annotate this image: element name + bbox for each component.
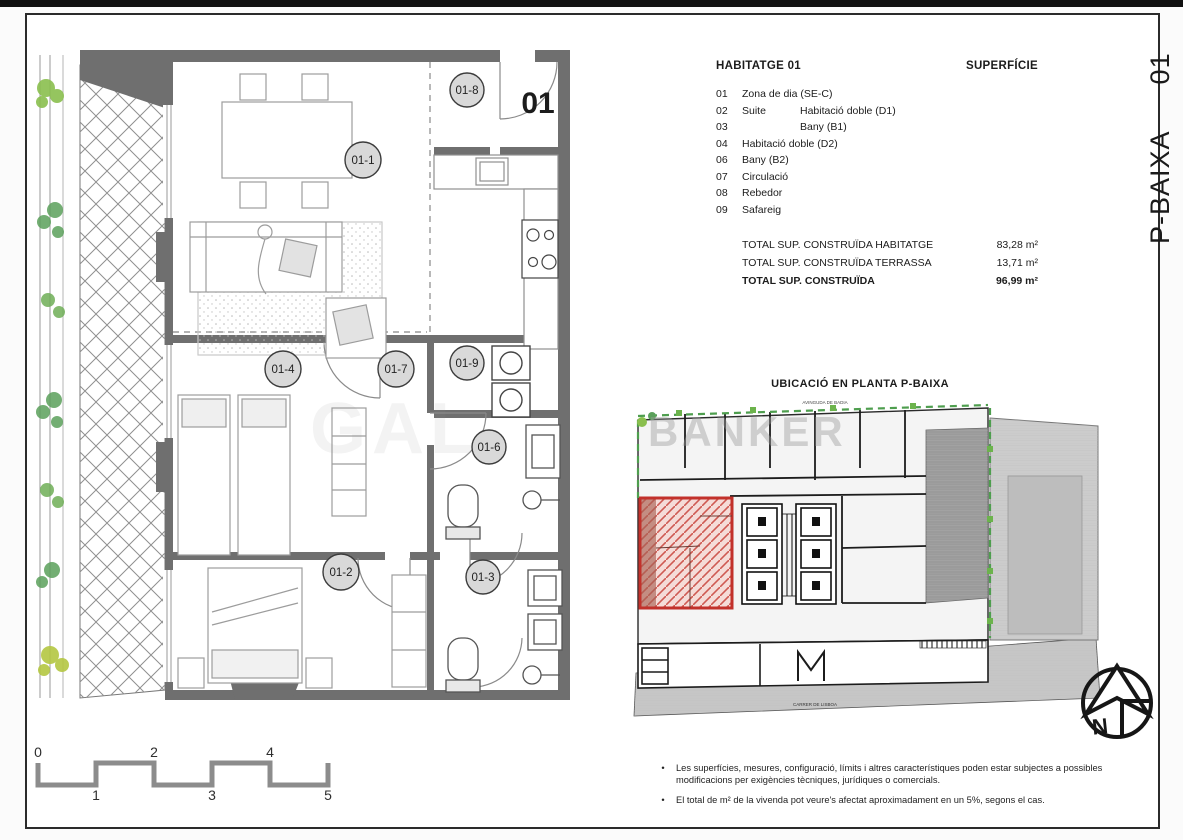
sheet-phase: P-BAIXA [1145, 130, 1175, 244]
site-plan: AVINGUDA DE BADIA CARRER DE LISBOA [630, 398, 1110, 743]
svg-text:01-1: 01-1 [351, 155, 374, 167]
room-tag-laundry: 01-9 [450, 346, 484, 380]
room-tag-bath-b1: 01-3 [466, 560, 500, 594]
total-row: TOTAL SUP. CONSTRUÏDA HABITATGE83,28 m² [716, 236, 1038, 254]
total-row-grand: TOTAL SUP. CONSTRUÏDA96,99 m² [716, 272, 1038, 290]
basin-icon-2 [523, 666, 541, 684]
lower-building [638, 640, 988, 688]
scale-bar: 0 2 4 1 3 5 [28, 745, 348, 803]
scale-bar-labels: 0 2 4 1 3 5 [34, 745, 332, 803]
legend-item: 02SuiteHabitació doble (D1) [716, 103, 1038, 120]
totals: TOTAL SUP. CONSTRUÏDA HABITATGE83,28 m² … [716, 236, 1038, 290]
unit-number: 01 [521, 87, 554, 120]
basin-icon [523, 491, 541, 509]
legend-item: 03Bany (B1) [716, 119, 1038, 136]
north-arrow: N [1072, 656, 1162, 746]
building-block [637, 403, 993, 688]
stairs-icon [782, 514, 796, 596]
highlighted-unit [640, 498, 732, 608]
scale-bar-drawing: 0 2 4 1 3 5 [28, 745, 348, 803]
notes: • Les superfícies, mesures, configuració… [650, 763, 1142, 816]
plants [36, 79, 69, 676]
legend-item: 08Rebedor [716, 185, 1038, 202]
garden-strip [36, 55, 69, 698]
legend-col-header: SUPERFÍCIE [966, 60, 1038, 72]
terrace [80, 65, 165, 698]
svg-text:01-2: 01-2 [329, 567, 352, 579]
drawing-sheet: 01-1 01-8 01-4 01-7 01-9 01-6 01-2 01-3 … [0, 0, 1183, 840]
room-tag-hall: 01-7 [378, 351, 414, 387]
room-tag-entry: 01-8 [450, 73, 484, 107]
svg-text:4: 4 [266, 745, 274, 760]
legend-title: HABITATGE 01 [716, 60, 801, 72]
svg-text:2: 2 [150, 745, 158, 760]
svg-text:01-4: 01-4 [271, 364, 295, 376]
street-name-top: AVINGUDA DE BADIA [802, 400, 847, 405]
svg-text:01-7: 01-7 [384, 364, 407, 376]
svg-text:3: 3 [208, 787, 216, 803]
kitchen [434, 155, 558, 349]
scan-top-strip [0, 0, 1183, 7]
legend-item: 09Safareig [716, 202, 1038, 219]
svg-text:5: 5 [324, 787, 332, 803]
laundry-appliances [492, 346, 530, 417]
svg-text:01-8: 01-8 [455, 85, 478, 97]
room-tag-bath-b2: 01-6 [472, 430, 506, 464]
hall-closet [332, 408, 366, 516]
site-plan-title: UBICACIÓ EN PLANTA P-BAIXA [640, 378, 1080, 390]
stove-icon [522, 220, 558, 278]
north-arrow-icon: N [1072, 656, 1162, 746]
scale-bar-line [38, 763, 328, 785]
courtyard [990, 418, 1098, 640]
legend-item: 04Habitació doble (D2) [716, 136, 1038, 153]
street-name-bottom: CARRER DE LISBOA [793, 702, 837, 707]
legend: HABITATGE 01 SUPERFÍCIE 01Zona de dia (S… [716, 60, 1038, 290]
svg-text:01-6: 01-6 [477, 442, 500, 454]
dryer-icon [500, 389, 522, 411]
room-tag-living: 01-1 [345, 142, 381, 178]
note-item: • El total de m² de la vivenda pot veure… [650, 795, 1142, 807]
svg-text:1: 1 [92, 787, 100, 803]
note-item: • Les superfícies, mesures, configuració… [650, 763, 1142, 786]
site-plan-drawing: AVINGUDA DE BADIA CARRER DE LISBOA [630, 398, 1110, 743]
suite-furniture [178, 568, 426, 688]
north-label: N [1091, 713, 1109, 740]
svg-text:0: 0 [34, 745, 42, 760]
toilet-icon [448, 485, 478, 527]
bathroom-b1 [446, 570, 562, 692]
elevator-core [742, 504, 836, 604]
sheet-code: P-BAIXA01 [1114, 38, 1183, 278]
sheet-unit: 01 [1145, 52, 1175, 84]
total-row: TOTAL SUP. CONSTRUÏDA TERRASSA13,71 m² [716, 254, 1038, 272]
room-tag-bedroom-d2: 01-4 [265, 351, 301, 387]
toilet-icon-2 [448, 638, 478, 680]
legend-item: 01Zona de dia (SE-C) [716, 86, 1038, 103]
floor-plan-drawing: 01-1 01-8 01-4 01-7 01-9 01-6 01-2 01-3 … [30, 50, 575, 705]
svg-text:01-3: 01-3 [471, 572, 494, 584]
bullet-icon: • [650, 795, 676, 807]
bedroom-d2-furniture [178, 395, 290, 555]
legend-item: 06Bany (B2) [716, 152, 1038, 169]
bullet-icon: • [650, 763, 676, 786]
svg-text:01-9: 01-9 [455, 358, 478, 370]
terrace-windows [163, 105, 175, 682]
washer-icon [500, 352, 522, 374]
room-tag-suite: 01-2 [323, 554, 359, 590]
legend-item: 07Circulació [716, 169, 1038, 186]
floor-plan: 01-1 01-8 01-4 01-7 01-9 01-6 01-2 01-3 … [30, 50, 575, 705]
living-furniture [190, 74, 386, 358]
